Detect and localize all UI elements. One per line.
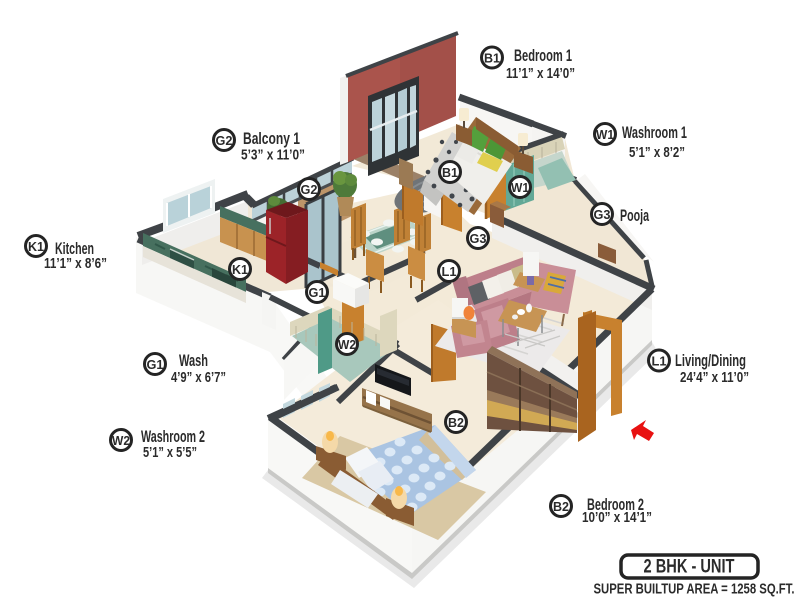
svg-text:24’4” x 11’0”: 24’4” x 11’0” [680,369,749,386]
svg-text:W2: W2 [112,434,130,448]
svg-text:G1: G1 [147,358,164,372]
svg-text:Living/Dining: Living/Dining [675,351,746,370]
svg-text:G2: G2 [216,134,233,148]
svg-text:SUPER BUILTUP AREA = 1258 SQ.F: SUPER BUILTUP AREA = 1258 SQ.FT. [594,581,795,598]
svg-text:L1: L1 [442,265,457,279]
svg-text:11’1” x 8’6”: 11’1” x 8’6” [44,255,107,272]
svg-text:K1: K1 [28,240,44,254]
svg-text:K1: K1 [232,263,248,277]
svg-text:G2: G2 [301,183,318,197]
svg-text:B1: B1 [484,52,500,66]
svg-text:W2: W2 [338,338,356,352]
svg-text:G1: G1 [309,286,326,300]
svg-text:10’0” x 14’1”: 10’0” x 14’1” [582,509,652,526]
svg-text:W1: W1 [511,181,529,195]
svg-text:Pooja: Pooja [620,206,649,225]
svg-text:2 BHK - UNIT: 2 BHK - UNIT [644,557,735,578]
svg-text:Washroom 1: Washroom 1 [622,123,687,142]
svg-text:G3: G3 [470,232,487,246]
svg-text:4’9” x 6’7”: 4’9” x 6’7” [171,369,226,386]
svg-text:B2: B2 [553,500,569,514]
svg-text:B1: B1 [442,166,458,180]
svg-text:G3: G3 [594,208,611,222]
svg-text:5’1” x 5’5”: 5’1” x 5’5” [143,444,197,461]
svg-text:5’1” x 8’2”: 5’1” x 8’2” [629,144,685,161]
svg-text:Wash: Wash [179,351,208,370]
svg-text:Bedroom 1: Bedroom 1 [514,46,572,65]
svg-text:B2: B2 [448,416,464,430]
svg-text:W1: W1 [596,128,614,142]
svg-text:Balcony 1: Balcony 1 [243,129,300,148]
svg-text:L1: L1 [652,355,667,369]
svg-text:11’1” x 14’0”: 11’1” x 14’0” [506,65,575,82]
svg-text:5’3” x 11’0”: 5’3” x 11’0” [241,147,305,164]
